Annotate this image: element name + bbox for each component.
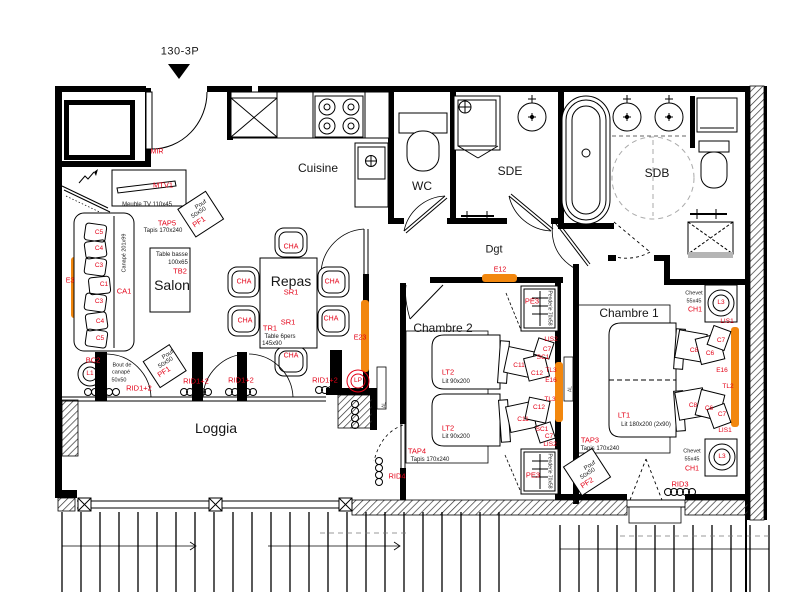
label-chevet-bot-1: Chevet bbox=[683, 449, 700, 455]
label-tl2: TL2 bbox=[722, 384, 733, 391]
room-label-chambre1: Chambre 1 bbox=[599, 307, 658, 319]
chambre2-door bbox=[406, 285, 444, 319]
label-rid3: RID3 bbox=[671, 480, 688, 488]
label-tapis-tap3: Tapis 170x240 bbox=[581, 446, 620, 452]
label-lt2-b: LT2 bbox=[442, 424, 454, 432]
label-e23: E23 bbox=[354, 335, 366, 342]
floor-plan: 130-3P CuisineWCSDESDBDgtSalonRepasChamb… bbox=[0, 0, 788, 596]
tv-cabinet-icon bbox=[112, 170, 186, 206]
entry-door bbox=[146, 64, 207, 149]
label-lp: LP bbox=[354, 378, 362, 385]
label-tl3-b: TL3 bbox=[544, 397, 555, 404]
sink-icon bbox=[355, 143, 392, 207]
label-tr1: TR1 bbox=[263, 324, 277, 332]
label-lis2-a: LIS2 bbox=[544, 337, 557, 344]
label-c7-ch1a: C7 bbox=[717, 338, 725, 345]
label-c3a: C3 bbox=[95, 263, 103, 270]
label-table-basse: Table basse bbox=[156, 252, 188, 258]
room-label-chambre2: Chambre 2 bbox=[413, 322, 472, 334]
label-lit90-b: Lit 90x200 bbox=[442, 434, 470, 440]
label-c12-b: C12 bbox=[533, 405, 545, 412]
label-tl3-a: TL3 bbox=[545, 368, 556, 375]
label-c3b: C3 bbox=[95, 299, 103, 306]
sdb-door bbox=[612, 222, 650, 258]
label-e16-ch1: E16 bbox=[716, 368, 728, 375]
label-cha-r1: CHA bbox=[325, 279, 340, 286]
label-meuble-tv: Meuble TV 110x45 bbox=[122, 202, 172, 208]
label-c8-a: C8 bbox=[690, 348, 698, 355]
curtain-rid4-icon bbox=[376, 458, 383, 486]
label-c11-a: C11 bbox=[513, 363, 524, 370]
label-rid4: RID4 bbox=[388, 472, 405, 480]
label-c7-ch2b: C7 bbox=[545, 434, 553, 441]
label-c7-ch1b: C7 bbox=[718, 412, 726, 419]
sdb-cabinet bbox=[697, 98, 737, 132]
label-bc2: BC2 bbox=[86, 356, 101, 364]
label-lis1-bottom: LIS1 bbox=[718, 428, 731, 435]
label-tb2: TB2 bbox=[173, 267, 187, 275]
label-rid12-1: RID1+2 bbox=[126, 384, 152, 392]
label-tapis-tap5: Tapis 170x240 bbox=[144, 228, 183, 234]
label-chevet-top-2: 55x45 bbox=[687, 299, 702, 305]
balustrade-right bbox=[560, 525, 769, 592]
label-sr1-a: SR1 bbox=[284, 288, 299, 296]
label-e16-ch2: E16 bbox=[545, 378, 557, 385]
label-penderie-bottom: Penderie 70x58 bbox=[547, 453, 552, 488]
label-cha-top: CHA bbox=[284, 244, 299, 251]
label-table-6pers: Table 6pers bbox=[264, 334, 295, 340]
duct bbox=[564, 357, 573, 401]
label-rid12-4: RID1+2 bbox=[312, 376, 338, 384]
label-cha-l1: CHA bbox=[237, 279, 252, 286]
label-lit90-a: Lit 90x200 bbox=[442, 379, 470, 385]
wc-door bbox=[404, 196, 447, 233]
balustrade-left bbox=[62, 512, 499, 592]
room-label-sdb: SDB bbox=[645, 167, 670, 179]
label-l1: L1 bbox=[86, 371, 93, 378]
towel-rail-icon bbox=[690, 209, 727, 219]
double-washbasin-icon bbox=[612, 95, 688, 136]
label-e3: E3 bbox=[66, 278, 75, 285]
label-c4b: C4 bbox=[96, 319, 104, 326]
label-pe3-top: PE3 bbox=[525, 297, 539, 305]
label-bout-3: 50x50 bbox=[112, 378, 127, 384]
label-lis2-b: LIS2 bbox=[543, 442, 556, 449]
room-label-loggia: Loggia bbox=[195, 421, 237, 435]
label-al-2: AL bbox=[569, 386, 574, 392]
label-l3-top: L3 bbox=[717, 300, 724, 307]
label-c5a: C5 bbox=[95, 230, 103, 237]
label-c12-a: C12 bbox=[531, 371, 543, 378]
label-tap3: TAP3 bbox=[581, 436, 599, 444]
label-chevet-bot-2: 55x45 bbox=[685, 457, 700, 463]
label-cha-l2: CHA bbox=[238, 318, 253, 325]
plan-number: 130-3P bbox=[161, 47, 199, 58]
label-c11-b: C11 bbox=[517, 417, 528, 424]
label-lt2-a: LT2 bbox=[442, 368, 454, 376]
floor-plan-drawing bbox=[0, 0, 788, 596]
chambre2-furniture bbox=[377, 286, 573, 494]
label-e12: E12 bbox=[494, 267, 506, 274]
label-tap5: TAP5 bbox=[158, 219, 176, 227]
label-mir: MIR bbox=[151, 149, 164, 156]
label-tap4: TAP4 bbox=[408, 447, 426, 455]
label-pe3-bottom: PE3 bbox=[526, 471, 540, 479]
label-c1: C1 bbox=[100, 282, 108, 289]
label-rid12-2: RID1+2 bbox=[183, 377, 209, 385]
label-l3-bottom: L3 bbox=[718, 454, 725, 461]
chair-icon bbox=[275, 228, 307, 257]
label-lis1-top: LIS1 bbox=[720, 319, 733, 326]
room-label-dgt: Dgt bbox=[485, 245, 502, 256]
room-label-sde: SDE bbox=[498, 165, 523, 177]
label-c8-b: C8 bbox=[689, 403, 697, 410]
label-c6-a: C6 bbox=[706, 351, 714, 358]
entry-arrow-icon bbox=[168, 64, 190, 79]
label-lit180: Lit 180x200 (2x90) bbox=[621, 422, 671, 428]
corner-tv-icon bbox=[62, 169, 112, 218]
label-chevet-top-1: Chevet bbox=[685, 291, 702, 297]
label-penderie-top: Penderie 70x58 bbox=[547, 290, 552, 325]
label-table-6pers-dim: 145x90 bbox=[262, 341, 282, 347]
label-ch1-bottom: CH1 bbox=[685, 466, 699, 473]
label-ch1-top: CH1 bbox=[688, 307, 702, 314]
sdb-toilet-icon bbox=[699, 141, 729, 188]
room-label-wc: WC bbox=[412, 180, 432, 192]
washbasin-icon bbox=[518, 95, 546, 131]
label-c4a: C4 bbox=[95, 246, 103, 253]
toilet-icon bbox=[399, 113, 447, 171]
shower-icon bbox=[454, 96, 500, 158]
label-rid12-3: RID1+2 bbox=[228, 376, 254, 384]
label-c7-ch2a: C7 bbox=[543, 347, 551, 354]
room-label-repas: Repas bbox=[271, 274, 311, 288]
balcony-door-dashed bbox=[630, 459, 662, 500]
label-c5b: C5 bbox=[96, 336, 104, 343]
room-label-cuisine: Cuisine bbox=[298, 162, 338, 174]
label-bout-1: Bout de bbox=[113, 363, 132, 369]
door-threshold bbox=[629, 507, 681, 523]
shaft-box bbox=[67, 103, 133, 158]
label-sc1-a: SC1 bbox=[537, 355, 550, 362]
label-bout-2: canapé bbox=[112, 370, 130, 376]
window-e12 bbox=[482, 274, 517, 282]
sdb-fixtures bbox=[612, 95, 737, 258]
bathtub-icon bbox=[562, 96, 610, 224]
label-mtv1: MTV1 bbox=[153, 181, 173, 189]
rail-post-icon bbox=[78, 498, 352, 511]
sde-door bbox=[509, 194, 553, 231]
chair-icon bbox=[275, 347, 307, 376]
label-tapis-tap4: Tapis 170x240 bbox=[411, 457, 450, 463]
label-cha-r2: CHA bbox=[324, 316, 339, 323]
label-table-basse-dim: 100x65 bbox=[168, 260, 188, 266]
label-c6-b: C6 bbox=[705, 406, 713, 413]
label-al-1: AL bbox=[383, 402, 388, 408]
kitchen-fixtures bbox=[231, 92, 392, 207]
label-lt1: LT1 bbox=[618, 411, 630, 419]
window-e16-ch1 bbox=[731, 327, 739, 427]
sde-fixtures bbox=[454, 95, 553, 231]
room-label-salon: Salon bbox=[154, 278, 190, 292]
washing-machine-icon bbox=[688, 222, 733, 258]
label-ca1: CA1 bbox=[117, 287, 132, 295]
label-canape-dim: Canapé 201x99 bbox=[122, 234, 128, 273]
label-sr1-b: SR1 bbox=[281, 318, 296, 326]
label-cha-bottom: CHA bbox=[284, 353, 299, 360]
wc-fixtures bbox=[399, 113, 447, 233]
